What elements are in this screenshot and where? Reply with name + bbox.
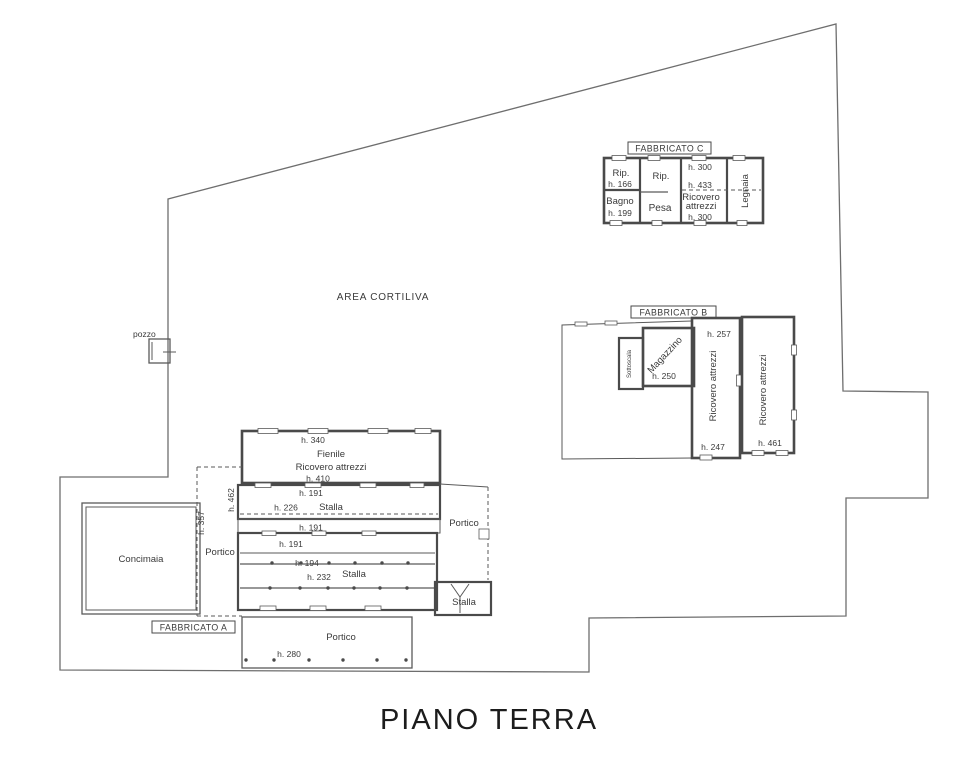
h-280: h. 280	[277, 649, 301, 659]
notch	[733, 156, 745, 161]
h-357: h. 357	[196, 511, 206, 535]
room-portico-right: Portico	[449, 518, 479, 529]
room-ricovero1: Ricovero attrezzi	[708, 351, 719, 422]
page-title: PIANO TERRA	[380, 704, 598, 736]
site-boundary	[60, 24, 928, 672]
floor-plan-drawing: pozzo AREA CORTILIVA FABBRICATO C Rip. h…	[0, 0, 974, 763]
room-fienile-line1: Fienile	[317, 449, 345, 460]
notch	[612, 156, 626, 161]
fabbricato-a: FABBRICATO A h. 340 Fienile Ricovero att…	[82, 429, 491, 669]
room-stalla-small: Stalla	[452, 597, 476, 608]
room-rip2: Rip.	[653, 171, 670, 182]
notch	[410, 483, 424, 488]
h-462: h. 462	[226, 488, 236, 512]
portico-right-top	[440, 484, 488, 487]
notch	[258, 429, 278, 434]
room-ricovero-line2: attrezzi	[686, 201, 717, 212]
notch	[792, 410, 797, 420]
fabbricato-b: FABBRICATO B Sottoscala Magazzino h. 250…	[562, 306, 797, 460]
fabbricato-b-label: FABBRICATO B	[639, 308, 707, 318]
notch	[415, 429, 431, 434]
room-rip1: Rip.	[613, 168, 630, 179]
notch	[365, 606, 381, 611]
floor-plan-page: pozzo AREA CORTILIVA FABBRICATO C Rip. h…	[0, 0, 974, 763]
room-portico-left: Portico	[205, 547, 235, 558]
courtyard-label: AREA CORTILIVA	[337, 292, 430, 303]
h-340: h. 340	[301, 435, 325, 445]
room-pesa: Pesa	[649, 203, 672, 214]
h-magazzino: h. 250	[652, 371, 676, 381]
notch	[305, 483, 321, 488]
h-bagno: h. 199	[608, 208, 632, 218]
notch	[368, 429, 388, 434]
h-194: h. 194	[295, 558, 319, 568]
building-stalla2-outline	[238, 533, 437, 610]
notch	[776, 451, 788, 456]
portico-bottom-columns	[244, 658, 407, 661]
room-legnaia: Legnaia	[740, 173, 751, 208]
notch	[737, 221, 747, 226]
notch	[360, 483, 376, 488]
h-257: h. 257	[707, 329, 731, 339]
fabbricato-a-label: FABBRICATO A	[160, 623, 228, 633]
portico-right-pillar	[479, 529, 489, 539]
room-portico-bottom: Portico	[326, 632, 356, 643]
notch	[752, 451, 764, 456]
notch	[310, 606, 326, 611]
h-247: h. 247	[701, 442, 725, 452]
well-symbol	[149, 339, 176, 363]
fabbricato-c-label: FABBRICATO C	[635, 144, 704, 154]
room-bagno: Bagno	[606, 196, 633, 207]
notch	[262, 531, 276, 536]
room-sottoscala: Sottoscala	[627, 349, 633, 378]
notch	[308, 429, 328, 434]
notch	[362, 531, 376, 536]
notch	[692, 156, 706, 161]
room-stalla1: Stalla	[319, 502, 343, 513]
h-191-a: h. 191	[299, 488, 323, 498]
notch	[700, 455, 712, 460]
notch	[255, 483, 271, 488]
h-300-top: h. 300	[688, 162, 712, 172]
h-rip1: h. 166	[608, 179, 632, 189]
notch	[575, 322, 587, 326]
notch	[792, 345, 797, 355]
h-433: h. 433	[688, 180, 712, 190]
notch	[652, 221, 662, 226]
h-461: h. 461	[758, 438, 782, 448]
notch	[648, 156, 660, 161]
notch	[605, 321, 617, 325]
well-label: pozzo	[133, 329, 156, 339]
h-232: h. 232	[307, 572, 331, 582]
h-191-c: h. 191	[279, 539, 303, 549]
room-fienile-line2: Ricovero attrezzi	[296, 462, 367, 473]
notch	[610, 221, 622, 226]
notch	[312, 531, 326, 536]
h-410: h. 410	[306, 474, 330, 484]
room-stalla2: Stalla	[342, 569, 366, 580]
room-ricovero2: Ricovero attrezzi	[758, 355, 769, 426]
fabbricato-c: FABBRICATO C Rip. h. 166 Rip. h. 300 h. …	[604, 142, 763, 226]
h-ricovero-c: h. 300	[688, 212, 712, 222]
room-concimaia: Concimaia	[119, 554, 165, 565]
notch	[260, 606, 276, 611]
h-226: h. 226	[274, 503, 298, 513]
room-magazzino: Magazzino	[645, 335, 684, 376]
